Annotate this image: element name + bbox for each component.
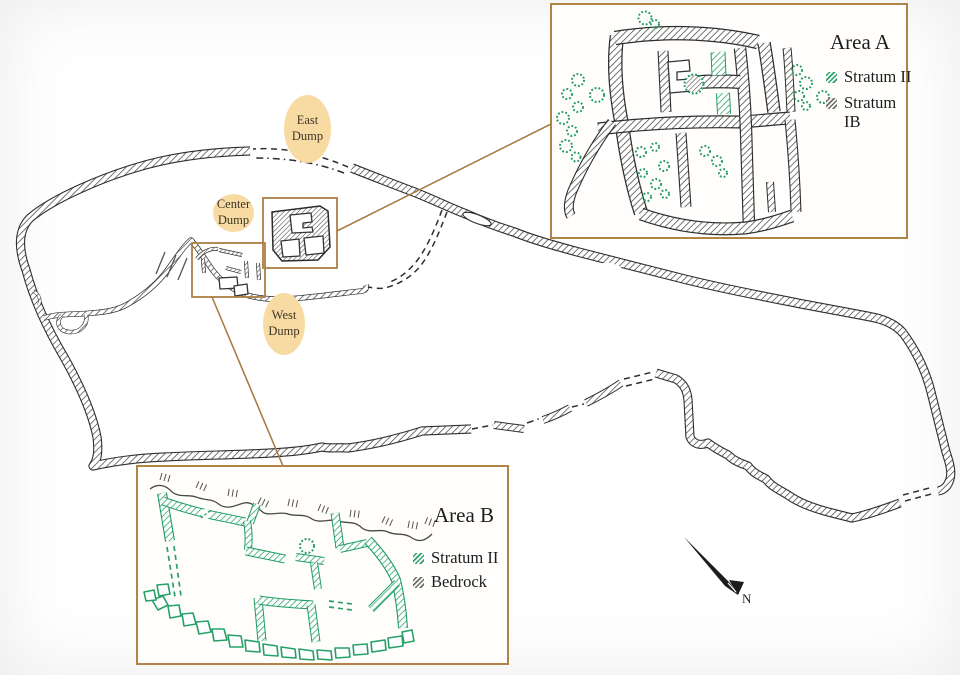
center-dump-line2: Dump <box>218 213 249 229</box>
center-dump-line1: Center <box>217 197 250 213</box>
center-dump-label: Center Dump <box>213 194 254 232</box>
north-arrow-icon <box>684 537 744 595</box>
east-dump-line1: East <box>297 113 319 129</box>
area-b-locator-box <box>192 243 265 297</box>
area-a-legend-stratum-ib: Stratum IB <box>826 94 896 132</box>
west-dump-line2: Dump <box>268 324 299 340</box>
east-dump-label: East Dump <box>284 95 331 163</box>
stratum-ib-label-line2: IB <box>844 113 896 132</box>
north-label: N <box>742 591 751 607</box>
site-map-figure: East Dump Center Dump West Dump Area A S… <box>0 0 960 675</box>
east-dump-line2: Dump <box>292 129 323 145</box>
area-a-title: Area A <box>818 30 902 55</box>
area-b-title: Area B <box>425 503 503 528</box>
area-a-locator-box <box>263 198 337 268</box>
west-dump-label: West Dump <box>263 293 305 355</box>
stratum-ii-label: Stratum II <box>431 549 498 568</box>
bedrock-swatch-icon <box>413 577 424 588</box>
area-b-legend-stratum-ii: Stratum II <box>413 549 498 568</box>
bedrock-label: Bedrock <box>431 573 487 592</box>
stratum-ib-swatch-icon <box>826 98 837 109</box>
area-b-legend-bedrock: Bedrock <box>413 573 487 592</box>
west-dump-line1: West <box>272 308 297 324</box>
stratum-ii-swatch-icon <box>826 72 837 83</box>
stratum-ii-label: Stratum II <box>844 68 911 87</box>
stratum-ii-swatch-icon <box>413 553 424 564</box>
area-a-legend-stratum-ii: Stratum II <box>826 68 911 87</box>
stratum-ib-label-line1: Stratum <box>844 94 896 113</box>
